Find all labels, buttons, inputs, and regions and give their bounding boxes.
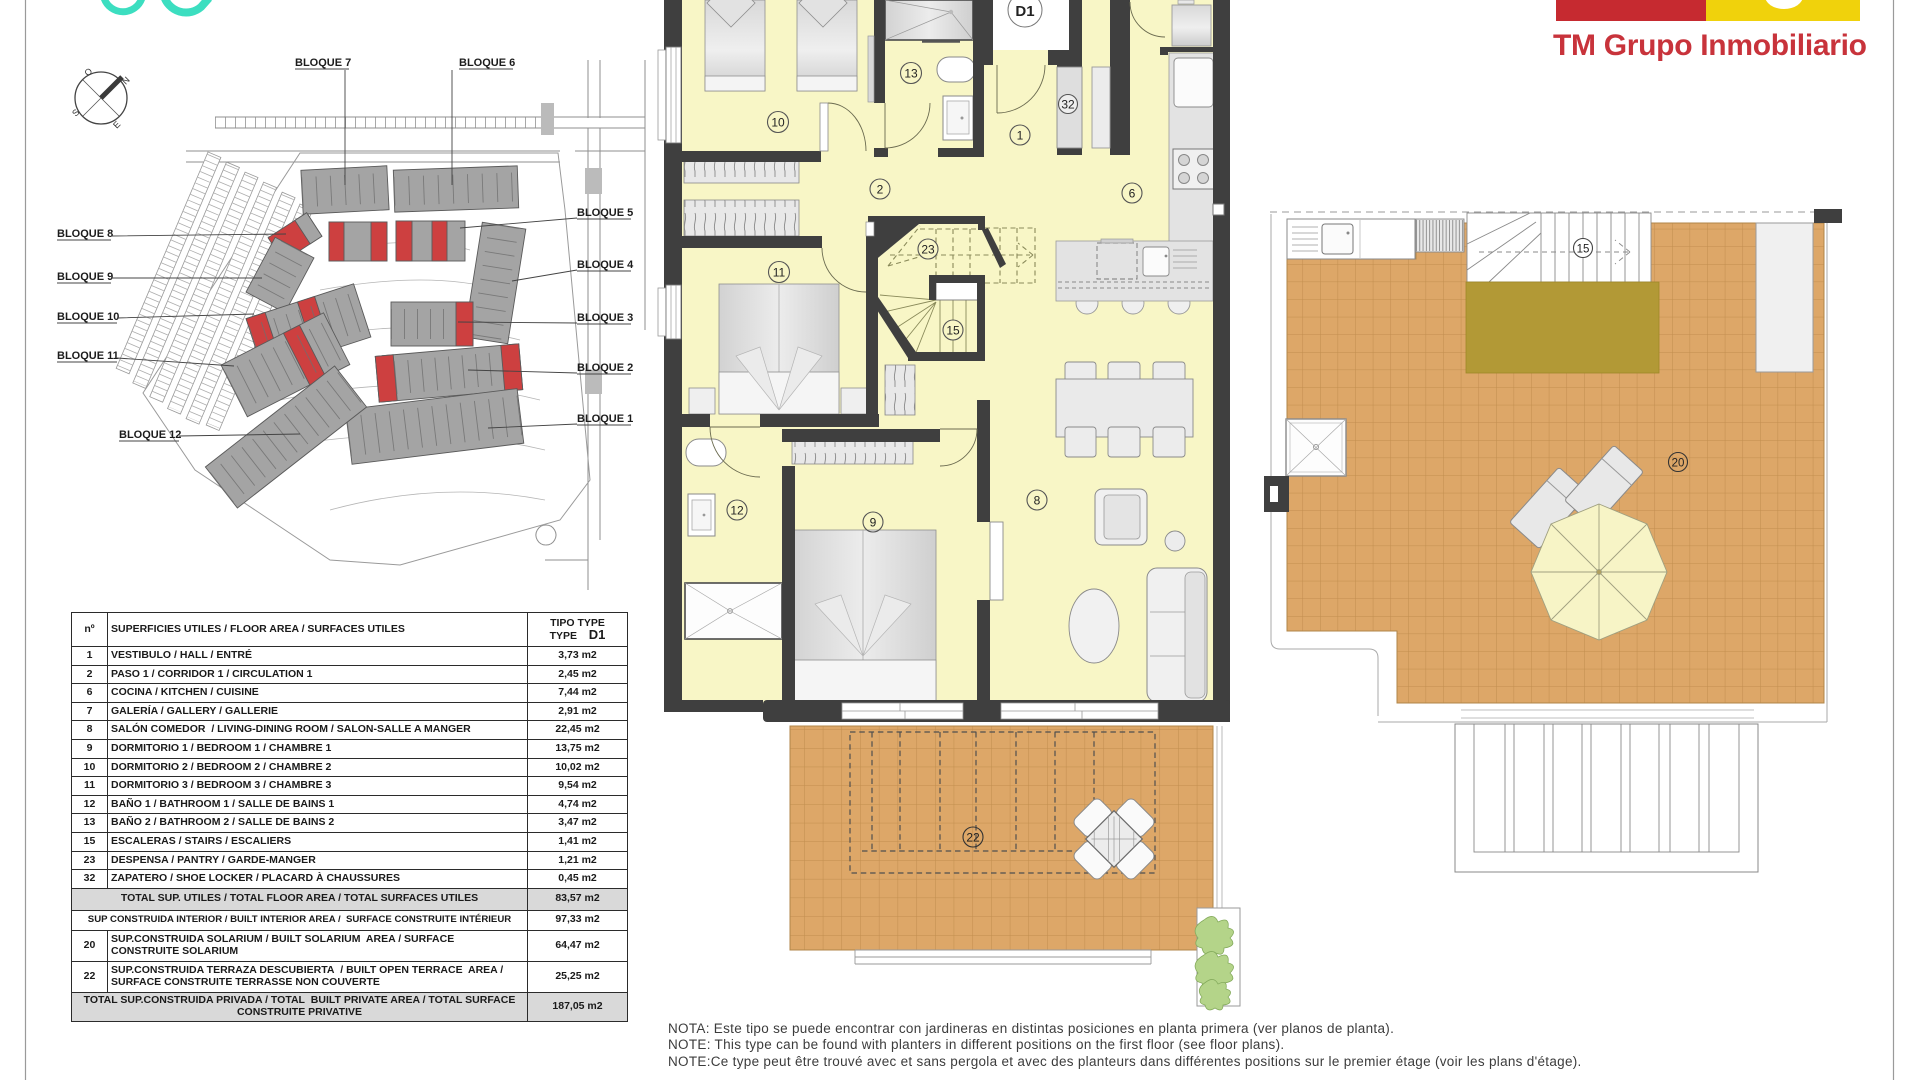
svg-text:BLOQUE 8: BLOQUE 8 xyxy=(57,228,113,240)
svg-text:22: 22 xyxy=(966,831,980,845)
svg-text:15: 15 xyxy=(1577,244,1590,256)
svg-text:BLOQUE 7: BLOQUE 7 xyxy=(295,57,351,69)
svg-text:S: S xyxy=(70,107,81,118)
svg-text:BLOQUE 6: BLOQUE 6 xyxy=(459,57,515,69)
svg-text:D1: D1 xyxy=(1015,3,1034,20)
svg-text:23: 23 xyxy=(921,243,935,257)
svg-text:1: 1 xyxy=(1017,129,1024,143)
svg-text:BLOQUE 4: BLOQUE 4 xyxy=(577,259,634,271)
svg-text:9: 9 xyxy=(870,516,877,530)
svg-text:10: 10 xyxy=(771,116,785,130)
svg-text:13: 13 xyxy=(904,67,918,81)
svg-text:BLOQUE 10: BLOQUE 10 xyxy=(57,311,119,323)
svg-text:BLOQUE 11: BLOQUE 11 xyxy=(57,350,119,362)
svg-text:6: 6 xyxy=(1129,187,1136,201)
svg-text:BLOQUE 1: BLOQUE 1 xyxy=(577,413,633,425)
svg-text:15: 15 xyxy=(946,324,960,338)
svg-text:BLOQUE 9: BLOQUE 9 xyxy=(57,271,113,283)
svg-text:E: E xyxy=(111,119,122,130)
svg-text:20: 20 xyxy=(1672,458,1685,470)
svg-text:BLOQUE 5: BLOQUE 5 xyxy=(577,207,633,219)
svg-text:12: 12 xyxy=(730,504,744,518)
svg-text:BLOQUE 3: BLOQUE 3 xyxy=(577,312,633,324)
svg-text:BLOQUE 12: BLOQUE 12 xyxy=(119,429,181,441)
svg-text:32: 32 xyxy=(1061,98,1075,112)
svg-text:BLOQUE 2: BLOQUE 2 xyxy=(577,362,633,374)
svg-text:8: 8 xyxy=(1034,494,1041,508)
svg-text:2: 2 xyxy=(877,183,884,197)
svg-text:O: O xyxy=(82,66,94,78)
svg-text:N: N xyxy=(120,75,132,87)
svg-text:11: 11 xyxy=(773,266,786,280)
svg-text:TM Grupo Inmobiliario: TM Grupo Inmobiliario xyxy=(1553,29,1867,62)
